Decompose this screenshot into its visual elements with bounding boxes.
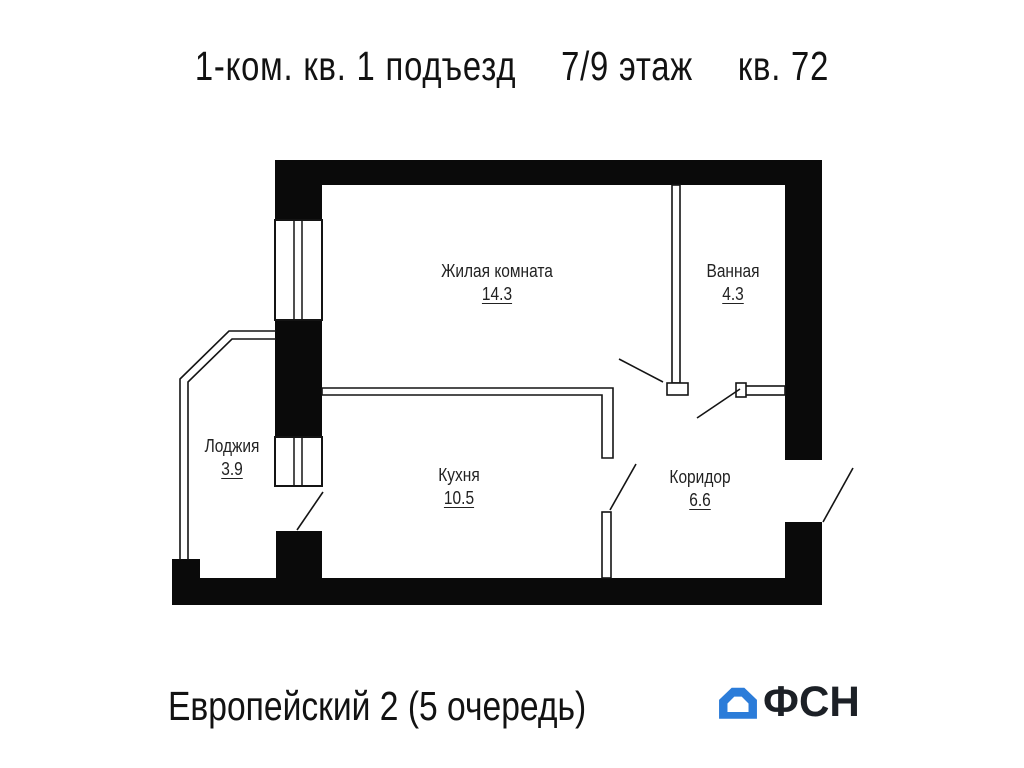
project-name: Европейский 2 (5 очередь) <box>168 684 586 728</box>
room-label-bathroom: Ванная 4.3 <box>638 261 827 305</box>
door-living-room <box>619 359 663 382</box>
room-name: Коридор <box>605 467 794 487</box>
room-label-living: Жилая комната 14.3 <box>402 261 591 305</box>
room-area: 4.3 <box>638 283 827 305</box>
room-label-kitchen: Кухня 10.5 <box>364 465 553 509</box>
door-bathroom <box>697 389 740 418</box>
interior-partitions <box>322 185 785 578</box>
developer-logo: ФСН <box>718 684 862 720</box>
door-entrance <box>823 468 853 522</box>
floorplan-page: 1-ком. кв. 1 подъезд 7/9 этаж кв. 72 <box>0 0 1024 768</box>
partition-kitchen-living <box>322 388 613 458</box>
room-name: Кухня <box>364 465 553 485</box>
room-name: Лоджия <box>137 436 326 456</box>
room-area: 3.9 <box>137 458 326 480</box>
room-label-loggia: Лоджия 3.9 <box>137 436 326 480</box>
wall-bottom <box>172 578 822 605</box>
wall-left-mid-block <box>275 320 322 437</box>
floor-plan-drawing <box>0 0 1024 768</box>
wall-right-lower <box>785 522 822 605</box>
partition-bathroom-foot <box>667 383 688 395</box>
partition-kitchen-corridor <box>602 512 611 578</box>
wall-right-upper <box>785 160 822 460</box>
room-label-corridor: Коридор 6.6 <box>605 467 794 511</box>
room-name: Ванная <box>638 261 827 281</box>
window-living-room <box>275 220 322 320</box>
room-area: 14.3 <box>402 283 591 305</box>
room-area: 10.5 <box>364 487 553 509</box>
logo-text: ФСН <box>763 685 860 719</box>
door-balcony <box>297 492 323 530</box>
house-icon <box>718 686 758 720</box>
room-name: Жилая комната <box>402 261 591 281</box>
exterior-walls <box>172 160 822 605</box>
room-area: 6.6 <box>605 489 794 511</box>
wall-left-corner-block <box>275 160 322 220</box>
wall-top <box>275 160 822 185</box>
